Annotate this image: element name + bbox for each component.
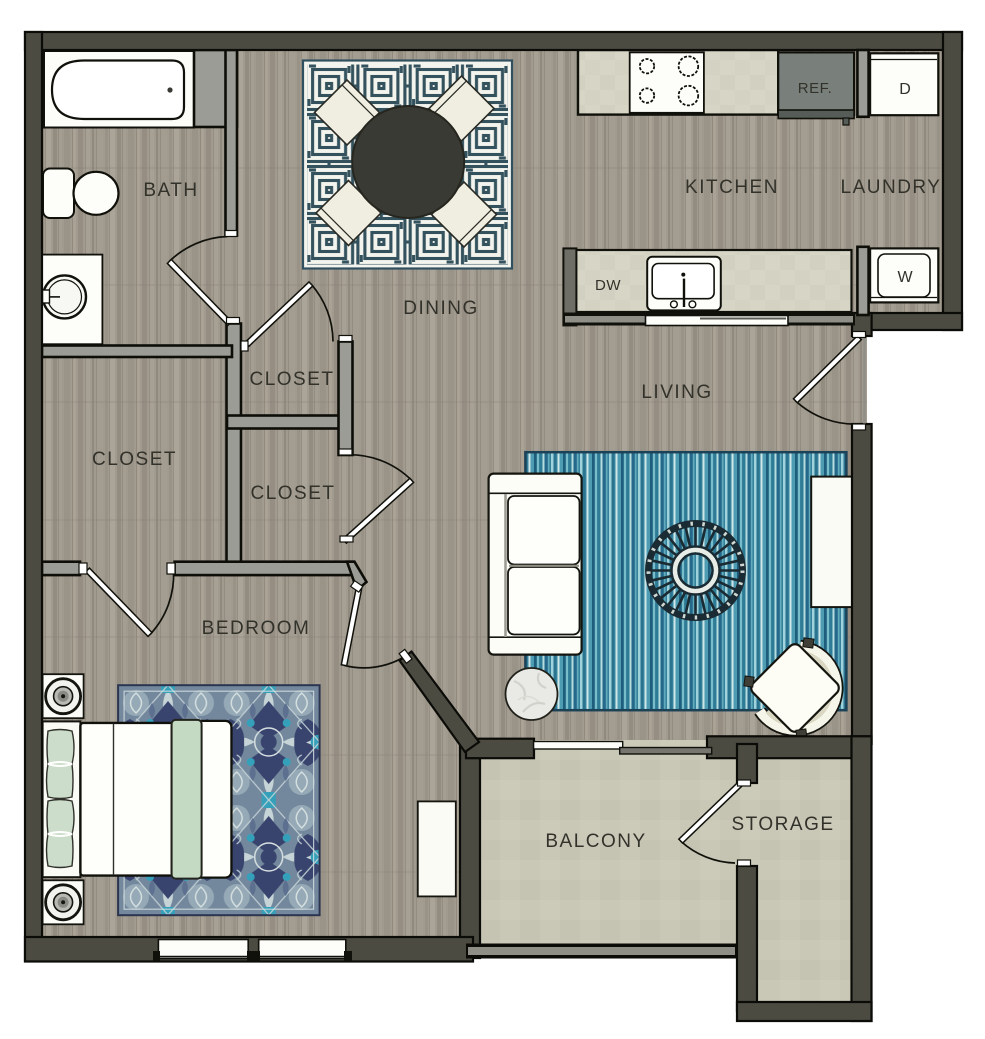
svg-text:LAUNDRY: LAUNDRY <box>841 177 942 198</box>
svg-text:BEDROOM: BEDROOM <box>202 618 311 639</box>
svg-text:DW: DW <box>595 277 621 294</box>
svg-text:LIVING: LIVING <box>641 382 712 403</box>
svg-text:STORAGE: STORAGE <box>731 814 834 835</box>
svg-text:D: D <box>899 81 911 98</box>
svg-text:BALCONY: BALCONY <box>545 831 646 852</box>
svg-text:CLOSET: CLOSET <box>92 449 177 470</box>
svg-text:CLOSET: CLOSET <box>249 369 334 390</box>
svg-text:BATH: BATH <box>143 180 198 201</box>
svg-text:W: W <box>897 269 913 286</box>
svg-text:KITCHEN: KITCHEN <box>685 177 779 198</box>
svg-text:REF.: REF. <box>798 80 833 97</box>
svg-text:CLOSET: CLOSET <box>250 483 335 504</box>
svg-text:DINING: DINING <box>403 298 479 319</box>
